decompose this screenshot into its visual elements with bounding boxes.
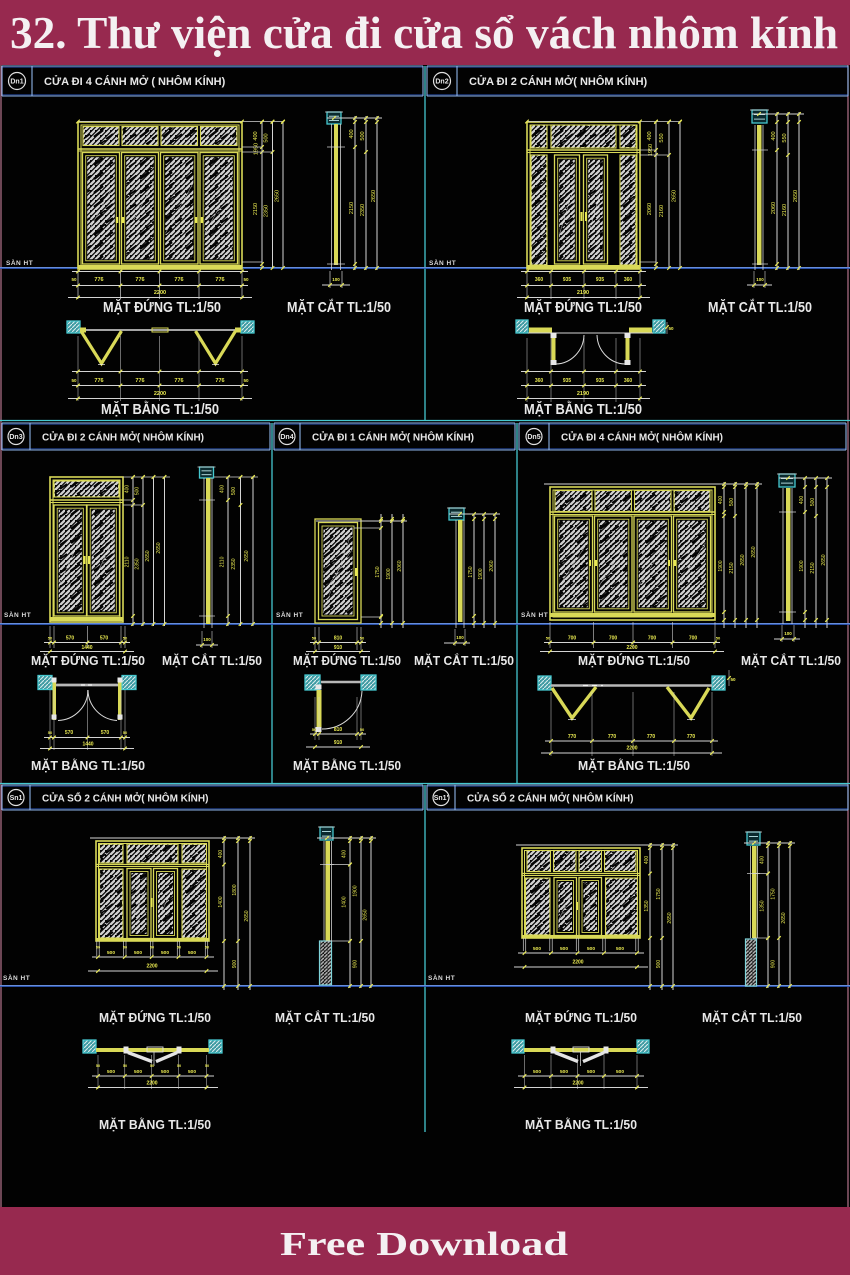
svg-text:SÀN HT: SÀN HT	[4, 610, 31, 619]
svg-text:1900: 1900	[353, 885, 359, 896]
svg-text:2150: 2150	[729, 562, 735, 573]
svg-text:50: 50	[96, 946, 100, 950]
svg-text:500: 500	[616, 946, 624, 952]
svg-text:500: 500	[264, 133, 270, 142]
svg-text:1400: 1400	[218, 896, 224, 907]
svg-text:2350: 2350	[135, 558, 141, 569]
svg-text:1950: 1950	[254, 143, 260, 155]
svg-text:500: 500	[161, 1069, 169, 1075]
svg-text:770: 770	[568, 734, 577, 740]
svg-text:2160: 2160	[782, 204, 788, 216]
svg-text:910: 910	[334, 740, 343, 746]
svg-text:776: 776	[135, 277, 144, 283]
svg-text:CỬA ĐI 2 CÁNH MỞ( NHÔM KÍNH): CỬA ĐI 2 CÁNH MỞ( NHÔM KÍNH)	[469, 75, 648, 88]
svg-text:550: 550	[659, 133, 665, 142]
svg-text:570: 570	[101, 730, 110, 736]
svg-text:100: 100	[784, 631, 792, 636]
svg-text:500: 500	[533, 946, 541, 952]
svg-text:2060: 2060	[489, 560, 495, 571]
svg-text:570: 570	[65, 730, 74, 736]
svg-text:770: 770	[608, 734, 617, 740]
svg-text:MẶT ĐỨNG TL:1/50: MẶT ĐỨNG TL:1/50	[578, 653, 690, 668]
svg-text:500: 500	[560, 946, 568, 952]
svg-text:Dn4: Dn4	[280, 434, 293, 441]
svg-text:1440: 1440	[82, 742, 93, 748]
svg-text:1750: 1750	[468, 566, 474, 577]
svg-text:400: 400	[125, 485, 131, 494]
svg-text:SÀN HT: SÀN HT	[521, 610, 548, 619]
svg-text:400: 400	[342, 850, 348, 859]
svg-text:776: 776	[94, 378, 103, 384]
svg-text:2350: 2350	[231, 558, 237, 569]
svg-text:900: 900	[232, 960, 238, 969]
svg-text:CỬA ĐI 4 CÁNH MỞ( NHÔM KÍNH): CỬA ĐI 4 CÁNH MỞ( NHÔM KÍNH)	[561, 431, 723, 444]
svg-text:CỬA SỔ 2 CÁNH MỞ( NHÔM KÍNH): CỬA SỔ 2 CÁNH MỞ( NHÔM KÍNH)	[42, 792, 208, 805]
svg-text:50: 50	[123, 636, 128, 641]
svg-text:2650: 2650	[371, 190, 377, 202]
svg-text:50: 50	[668, 326, 674, 331]
svg-text:50: 50	[205, 946, 209, 950]
svg-text:50: 50	[312, 727, 317, 732]
svg-text:1900: 1900	[478, 568, 484, 579]
svg-text:2650: 2650	[821, 554, 827, 565]
svg-text:400: 400	[218, 850, 224, 859]
svg-text:500: 500	[616, 1069, 624, 1075]
svg-text:Sn1': Sn1'	[434, 795, 449, 802]
svg-text:2650: 2650	[667, 912, 673, 923]
svg-text:400: 400	[799, 496, 805, 505]
svg-text:Free Download: Free Download	[280, 1226, 568, 1263]
svg-text:MẶT CẮT TL:1/50: MẶT CẮT TL:1/50	[702, 1010, 802, 1025]
svg-text:Dn3: Dn3	[9, 434, 22, 441]
svg-text:MẶT CẮT TL:1/50: MẶT CẮT TL:1/50	[741, 653, 841, 668]
svg-text:900: 900	[771, 960, 777, 969]
svg-text:1900: 1900	[799, 560, 805, 571]
svg-text:50: 50	[123, 730, 128, 735]
svg-text:910: 910	[334, 645, 343, 651]
svg-text:700: 700	[648, 636, 657, 642]
svg-text:50: 50	[360, 636, 365, 641]
svg-text:400: 400	[644, 856, 650, 865]
svg-text:550: 550	[782, 133, 788, 142]
svg-text:2060: 2060	[771, 202, 777, 214]
svg-text:935: 935	[596, 277, 605, 283]
svg-text:MẶT ĐỨNG TL:1/50: MẶT ĐỨNG TL:1/50	[525, 1010, 637, 1025]
svg-text:1900: 1900	[718, 560, 724, 571]
svg-text:CỬA ĐI 4 CÁNH MỞ ( NHÔM KÍNH): CỬA ĐI 4 CÁNH MỞ ( NHÔM KÍNH)	[44, 75, 226, 88]
svg-text:2060: 2060	[397, 560, 403, 571]
svg-text:2150: 2150	[810, 562, 816, 573]
svg-text:2110: 2110	[220, 556, 226, 567]
svg-text:776: 776	[174, 378, 183, 384]
svg-text:MẶT BẰNG TL:1/50: MẶT BẰNG TL:1/50	[31, 758, 145, 773]
svg-text:2200: 2200	[146, 1081, 157, 1087]
svg-text:2650: 2650	[244, 550, 250, 561]
svg-text:776: 776	[215, 378, 224, 384]
svg-text:700: 700	[609, 636, 618, 642]
svg-text:500: 500	[587, 946, 595, 952]
svg-text:360: 360	[535, 277, 544, 283]
svg-text:500: 500	[188, 1069, 196, 1075]
svg-text:770: 770	[647, 734, 656, 740]
svg-text:570: 570	[100, 636, 109, 642]
svg-text:MẶT BẰNG TL:1/50: MẶT BẰNG TL:1/50	[524, 400, 642, 418]
svg-text:MẶT ĐỨNG TL:1/50: MẶT ĐỨNG TL:1/50	[31, 653, 145, 668]
svg-text:1750: 1750	[656, 888, 662, 899]
svg-text:2650: 2650	[793, 190, 799, 202]
svg-text:50: 50	[243, 378, 249, 383]
svg-text:935: 935	[563, 277, 572, 283]
svg-text:MẶT CẮT TL:1/50: MẶT CẮT TL:1/50	[287, 298, 391, 316]
svg-text:2200: 2200	[146, 964, 157, 970]
svg-text:500: 500	[587, 1069, 595, 1075]
svg-text:400: 400	[771, 131, 777, 140]
svg-text:2650: 2650	[156, 542, 162, 553]
svg-text:400: 400	[647, 131, 653, 140]
svg-text:500: 500	[810, 498, 816, 507]
svg-text:CỬA ĐI 1 CÁNH MỞ( NHÔM KÍNH): CỬA ĐI 1 CÁNH MỞ( NHÔM KÍNH)	[312, 431, 474, 444]
svg-text:2350: 2350	[264, 205, 270, 217]
svg-text:500: 500	[161, 950, 169, 956]
svg-text:MẶT BẰNG TL:1/50: MẶT BẰNG TL:1/50	[578, 758, 690, 773]
svg-text:50: 50	[716, 636, 721, 641]
svg-text:1440: 1440	[81, 645, 92, 651]
svg-text:1750: 1750	[771, 888, 777, 899]
svg-text:50: 50	[150, 1064, 154, 1068]
svg-text:500: 500	[107, 950, 115, 956]
svg-text:2650: 2650	[672, 190, 678, 202]
svg-text:SÀN HT: SÀN HT	[6, 258, 33, 267]
svg-text:MẶT BẰNG TL:1/50: MẶT BẰNG TL:1/50	[99, 1117, 211, 1132]
svg-text:500: 500	[134, 1069, 142, 1075]
svg-text:770: 770	[687, 734, 696, 740]
svg-text:776: 776	[94, 277, 103, 283]
svg-text:2190: 2190	[577, 290, 589, 296]
svg-text:MẶT ĐỨNG TL:1/50: MẶT ĐỨNG TL:1/50	[103, 298, 221, 316]
svg-text:2650: 2650	[781, 912, 787, 923]
svg-text:2200: 2200	[572, 1081, 583, 1087]
svg-text:MẶT CẮT TL:1/50: MẶT CẮT TL:1/50	[162, 653, 262, 668]
svg-text:2200: 2200	[626, 746, 637, 752]
svg-text:500: 500	[188, 950, 196, 956]
svg-text:50: 50	[205, 1064, 209, 1068]
svg-text:50: 50	[312, 636, 317, 641]
svg-text:1900: 1900	[386, 568, 392, 579]
svg-text:1350: 1350	[760, 900, 766, 911]
svg-text:2200: 2200	[626, 645, 637, 651]
svg-text:MẶT ĐỨNG TL:1/50: MẶT ĐỨNG TL:1/50	[99, 1010, 211, 1025]
svg-text:1350: 1350	[644, 900, 650, 911]
svg-text:700: 700	[689, 636, 698, 642]
svg-text:50: 50	[243, 277, 249, 282]
svg-text:2060: 2060	[647, 203, 653, 215]
svg-text:SÀN HT: SÀN HT	[3, 973, 30, 982]
svg-text:50: 50	[360, 727, 365, 732]
svg-text:MẶT BẰNG TL:1/50: MẶT BẰNG TL:1/50	[293, 758, 401, 773]
svg-text:500: 500	[231, 487, 237, 496]
svg-text:400: 400	[253, 131, 259, 140]
svg-text:MẶT CẮT TL:1/50: MẶT CẮT TL:1/50	[708, 298, 812, 316]
svg-text:400: 400	[220, 485, 226, 494]
svg-text:MẶT BẰNG TL:1/50: MẶT BẰNG TL:1/50	[101, 400, 219, 418]
svg-text:935: 935	[596, 378, 605, 384]
svg-text:400: 400	[718, 496, 724, 505]
svg-text:360: 360	[535, 378, 544, 384]
svg-text:50: 50	[546, 636, 551, 641]
svg-text:2150: 2150	[349, 202, 355, 214]
svg-text:2650: 2650	[740, 554, 746, 565]
svg-text:50: 50	[150, 946, 154, 950]
svg-text:900: 900	[656, 960, 662, 969]
svg-text:50: 50	[96, 1064, 100, 1068]
svg-text:50: 50	[177, 946, 181, 950]
svg-text:776: 776	[215, 277, 224, 283]
svg-text:500: 500	[360, 131, 366, 140]
svg-text:2650: 2650	[751, 546, 757, 557]
svg-text:776: 776	[135, 378, 144, 384]
svg-text:500: 500	[533, 1069, 541, 1075]
svg-text:500: 500	[560, 1069, 568, 1075]
svg-text:MẶT ĐỨNG TL:1/50: MẶT ĐỨNG TL:1/50	[293, 653, 401, 668]
svg-text:400: 400	[760, 856, 766, 865]
svg-text:100: 100	[456, 635, 464, 640]
svg-text:2650: 2650	[363, 909, 369, 920]
svg-text:50: 50	[48, 636, 53, 641]
svg-text:700: 700	[568, 636, 577, 642]
svg-text:2650: 2650	[275, 190, 281, 202]
svg-text:570: 570	[66, 636, 75, 642]
svg-text:900: 900	[353, 960, 359, 969]
svg-text:SÀN HT: SÀN HT	[276, 610, 303, 619]
svg-text:2650: 2650	[244, 910, 250, 921]
svg-text:CỬA SỔ 2 CÁNH MỞ( NHÔM KÍNH): CỬA SỔ 2 CÁNH MỞ( NHÔM KÍNH)	[467, 792, 633, 805]
svg-text:50: 50	[177, 1064, 181, 1068]
svg-text:50: 50	[123, 1064, 127, 1068]
svg-text:Sn1: Sn1	[10, 795, 23, 802]
svg-text:100: 100	[203, 637, 211, 642]
svg-text:2200: 2200	[154, 391, 166, 397]
svg-text:MẶT BẰNG TL:1/50: MẶT BẰNG TL:1/50	[525, 1117, 637, 1132]
svg-text:360: 360	[624, 378, 633, 384]
svg-text:1800: 1800	[232, 884, 238, 895]
svg-text:2190: 2190	[577, 391, 589, 397]
svg-text:400: 400	[349, 129, 355, 138]
svg-text:Dn5: Dn5	[527, 434, 540, 441]
svg-text:500: 500	[134, 950, 142, 956]
svg-text:MẶT ĐỨNG TL:1/50: MẶT ĐỨNG TL:1/50	[524, 298, 642, 316]
svg-text:SÀN HT: SÀN HT	[429, 258, 456, 267]
svg-text:SÀN HT: SÀN HT	[428, 973, 455, 982]
svg-text:935: 935	[563, 378, 572, 384]
svg-text:50: 50	[730, 677, 736, 682]
svg-text:810: 810	[334, 727, 343, 733]
svg-text:2350: 2350	[360, 204, 366, 216]
svg-text:Dn1: Dn1	[10, 79, 23, 86]
svg-text:CỬA ĐI 2 CÁNH MỞ( NHÔM KÍNH): CỬA ĐI 2 CÁNH MỞ( NHÔM KÍNH)	[42, 431, 204, 444]
svg-text:50: 50	[71, 277, 77, 282]
svg-text:1750: 1750	[375, 566, 381, 577]
svg-text:500: 500	[135, 487, 141, 496]
svg-text:MẶT CẮT TL:1/50: MẶT CẮT TL:1/50	[275, 1010, 375, 1025]
svg-text:100: 100	[332, 277, 340, 282]
svg-text:MẶT CẮT TL:1/50: MẶT CẮT TL:1/50	[414, 653, 514, 668]
svg-text:32. Thư viện cửa đi cửa sổ vác: 32. Thư viện cửa đi cửa sổ vách nhôm kín…	[10, 7, 838, 58]
svg-text:360: 360	[624, 277, 633, 283]
svg-text:100: 100	[756, 277, 764, 282]
svg-text:500: 500	[729, 498, 735, 507]
svg-text:500: 500	[107, 1069, 115, 1075]
svg-text:2200: 2200	[154, 290, 166, 296]
svg-text:2110: 2110	[125, 556, 131, 567]
svg-text:776: 776	[174, 277, 183, 283]
svg-text:Dn2: Dn2	[435, 79, 448, 86]
svg-text:50: 50	[48, 730, 53, 735]
svg-text:2150: 2150	[253, 203, 259, 215]
svg-text:1400: 1400	[342, 896, 348, 907]
svg-text:50: 50	[71, 378, 77, 383]
svg-text:50: 50	[123, 946, 127, 950]
svg-text:2650: 2650	[145, 550, 151, 561]
svg-text:810: 810	[334, 636, 343, 642]
svg-text:2160: 2160	[659, 205, 665, 217]
svg-text:2200: 2200	[572, 960, 583, 966]
